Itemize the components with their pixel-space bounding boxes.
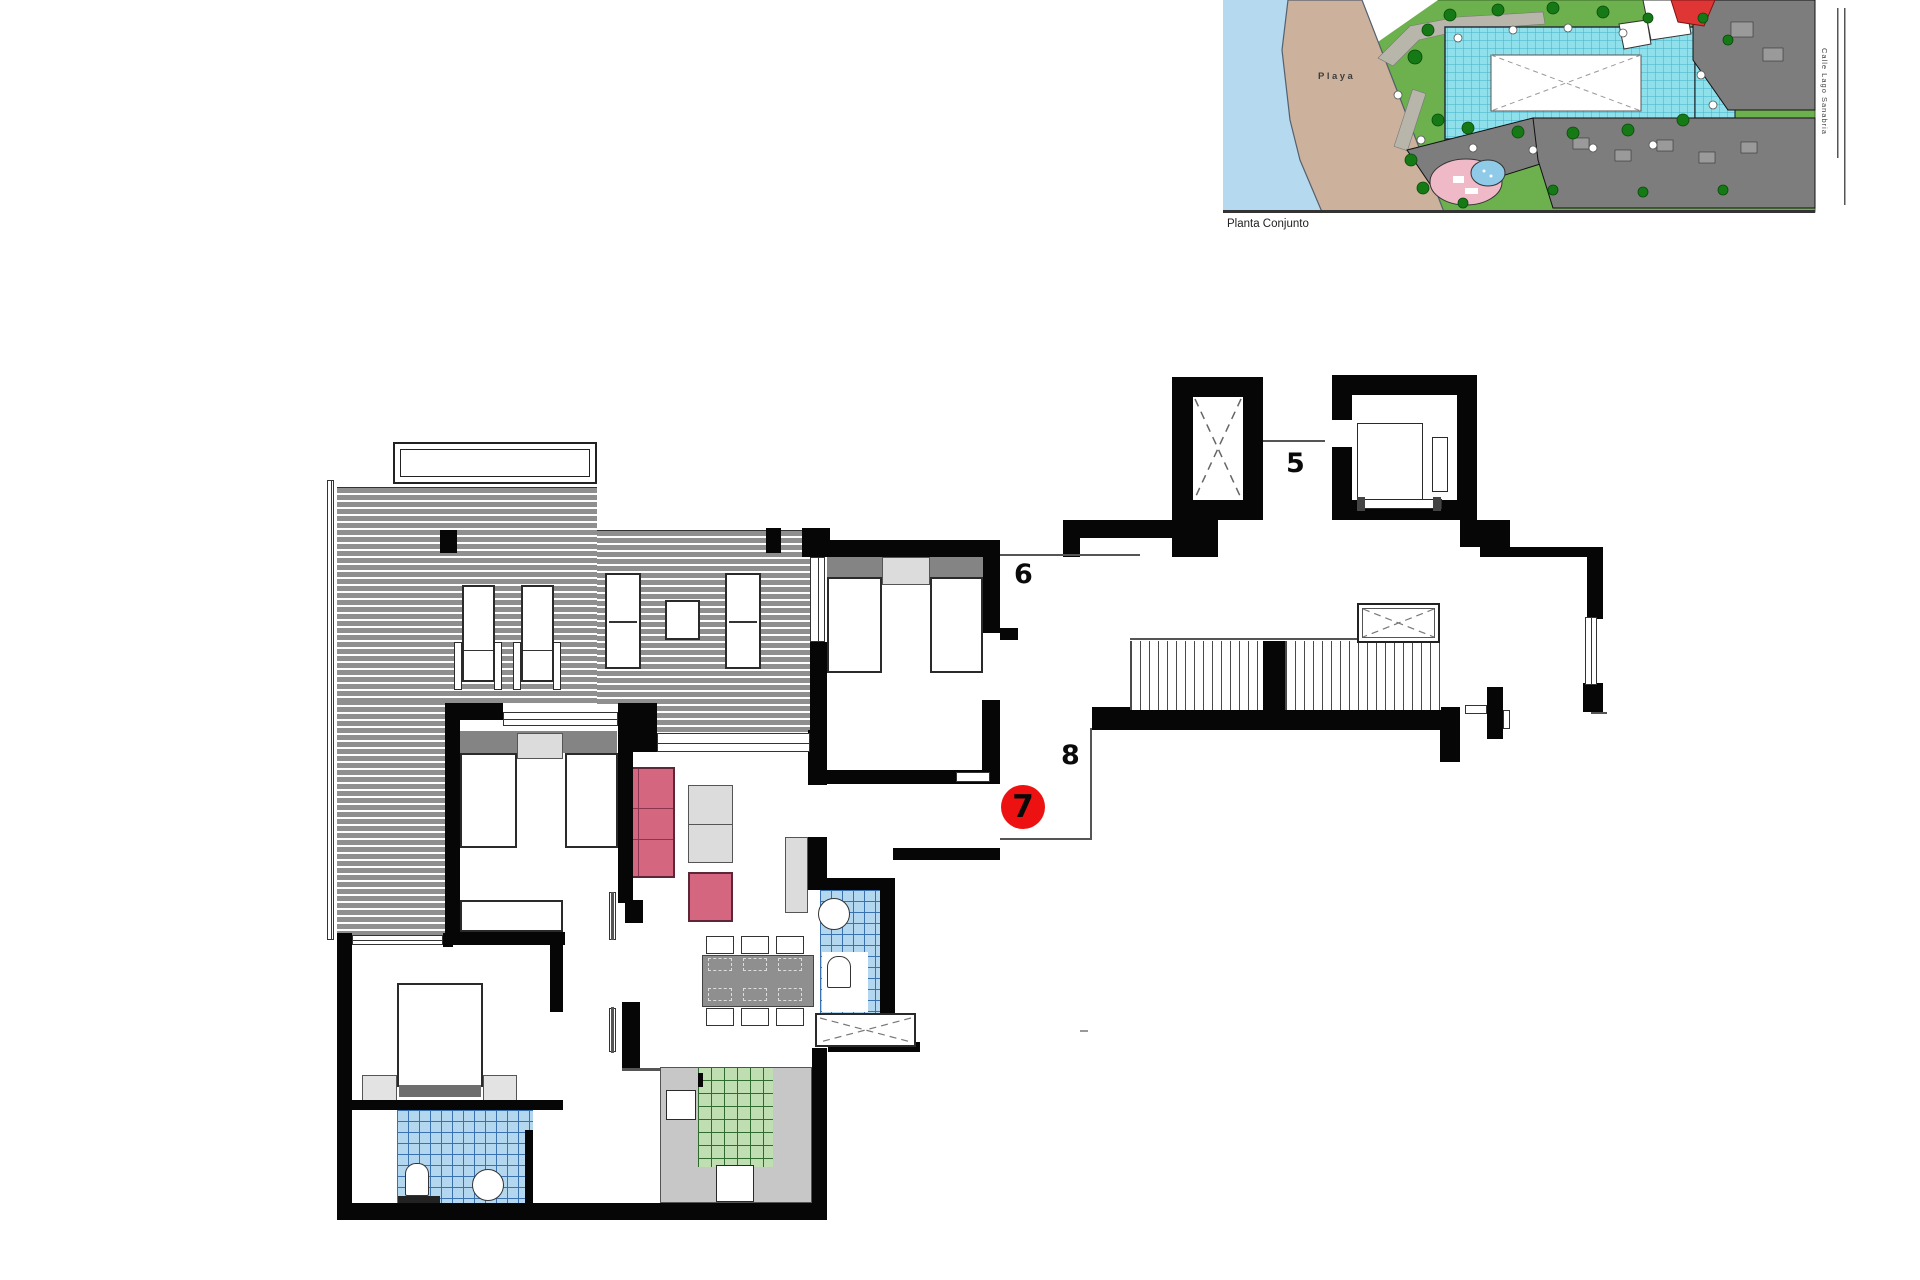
shower-x-mark bbox=[815, 1013, 916, 1047]
pond-detail bbox=[1465, 188, 1478, 194]
rail-cap bbox=[1433, 497, 1441, 511]
terrace-post bbox=[440, 530, 457, 553]
dining-chair bbox=[776, 1008, 804, 1026]
desk bbox=[460, 900, 563, 932]
wall bbox=[352, 1100, 563, 1110]
floor-edge-line bbox=[1591, 712, 1607, 714]
street-line bbox=[1844, 8, 1846, 205]
building-detail bbox=[1657, 140, 1673, 151]
vanity-counter bbox=[398, 1196, 440, 1203]
dining-chair bbox=[776, 936, 804, 954]
site-plan-bottom-border bbox=[1223, 210, 1815, 213]
rail-cap bbox=[1357, 497, 1365, 511]
lounger-armrest bbox=[553, 642, 561, 690]
outdoor-side-table bbox=[665, 600, 700, 640]
lounger-armrest bbox=[454, 642, 462, 690]
stair-divider-wall bbox=[1263, 641, 1285, 723]
wall bbox=[880, 878, 895, 1018]
wall bbox=[812, 1048, 827, 1220]
wall bbox=[622, 1002, 640, 1068]
floor-edge-line bbox=[1000, 554, 1140, 556]
wall bbox=[1440, 730, 1460, 762]
wall bbox=[982, 700, 1000, 777]
pond-blue bbox=[1471, 160, 1505, 186]
dimension-tick bbox=[1080, 1030, 1088, 1032]
wall bbox=[1487, 687, 1503, 739]
building-detail bbox=[1573, 138, 1589, 149]
wall bbox=[443, 933, 453, 947]
elevator-x-mark bbox=[1193, 397, 1243, 500]
wardrobe-box bbox=[882, 557, 930, 585]
site-plan-drawing bbox=[1223, 0, 1850, 214]
wall bbox=[1063, 520, 1080, 557]
kitchen-fixture bbox=[698, 1073, 703, 1087]
terrace-deck bbox=[337, 700, 445, 940]
wall bbox=[983, 540, 1000, 633]
wall bbox=[808, 730, 827, 785]
wall bbox=[810, 642, 827, 733]
street-label: Calle Lago Sanabria bbox=[1820, 48, 1829, 135]
wall bbox=[830, 540, 1000, 557]
street-line bbox=[1837, 8, 1839, 158]
chair-outline bbox=[743, 958, 767, 971]
building-detail bbox=[1731, 22, 1753, 37]
sun-lounger bbox=[521, 585, 554, 682]
armchair bbox=[688, 872, 733, 922]
chair-outline bbox=[778, 958, 802, 971]
dining-chair bbox=[706, 936, 734, 954]
storage-rail bbox=[1360, 499, 1442, 509]
twin-bed bbox=[565, 753, 618, 848]
chair-outline bbox=[743, 988, 767, 1001]
terrace-planter bbox=[393, 442, 597, 484]
pond-dot bbox=[1483, 170, 1486, 173]
unit-label-5: 5 bbox=[1286, 450, 1305, 477]
chair-outline bbox=[778, 988, 802, 1001]
window bbox=[503, 712, 618, 726]
wall bbox=[337, 933, 352, 1220]
building-detail bbox=[1699, 152, 1715, 163]
site-plan: Playa Calle Lago Sanabria bbox=[1223, 0, 1850, 214]
wall bbox=[1172, 520, 1218, 557]
floor-edge-line bbox=[1000, 838, 1092, 840]
bed-footer bbox=[399, 1085, 481, 1097]
wall bbox=[893, 848, 1000, 860]
wall bbox=[445, 703, 503, 720]
kitchen-appliance bbox=[666, 1090, 696, 1120]
coffee-table bbox=[688, 785, 733, 863]
wall bbox=[1480, 547, 1603, 557]
wall bbox=[802, 528, 830, 557]
dining-chair bbox=[741, 936, 769, 954]
wall bbox=[1000, 628, 1018, 640]
storage-shelf bbox=[1432, 437, 1448, 492]
outdoor-loveseat bbox=[725, 573, 761, 669]
nightstand bbox=[362, 1075, 397, 1101]
highlighted-unit-marker: 7 bbox=[1001, 785, 1045, 829]
lounger-armrest bbox=[494, 642, 502, 690]
door-leaf bbox=[611, 1007, 614, 1053]
wall bbox=[620, 737, 657, 752]
wall bbox=[337, 1203, 827, 1220]
nightstand bbox=[483, 1075, 517, 1101]
building-detail bbox=[1615, 150, 1631, 161]
sun-lounger bbox=[462, 585, 495, 682]
kitchen-floor bbox=[698, 1067, 773, 1167]
wall bbox=[1460, 520, 1510, 547]
wall bbox=[1080, 520, 1172, 538]
entry-threshold bbox=[956, 772, 990, 782]
toilet bbox=[405, 1163, 429, 1196]
highlighted-unit-number: 7 bbox=[1012, 789, 1034, 825]
round-sink bbox=[472, 1169, 504, 1201]
floor-edge-line bbox=[1263, 440, 1325, 442]
floor-plan-sheet: Playa Calle Lago Sanabria Planta Conjunt… bbox=[0, 0, 1920, 1280]
sideboard bbox=[785, 837, 808, 913]
stair-flight bbox=[1285, 641, 1441, 710]
twin-bed bbox=[930, 577, 983, 673]
floor-edge-line bbox=[1090, 728, 1092, 840]
bath-fixture-strip bbox=[525, 1130, 533, 1203]
twin-bed bbox=[460, 753, 517, 848]
unit-label-8: 8 bbox=[1061, 742, 1080, 769]
unit-label-6: 6 bbox=[1014, 561, 1033, 588]
wall bbox=[625, 902, 643, 923]
dining-chair bbox=[741, 1008, 769, 1026]
wall-thin bbox=[622, 1068, 660, 1071]
window bbox=[657, 733, 810, 752]
terrace-railing bbox=[327, 480, 334, 940]
storage-bed bbox=[1357, 423, 1423, 500]
toilet bbox=[827, 956, 851, 988]
terrace-door bbox=[352, 935, 443, 945]
wall bbox=[550, 940, 563, 1012]
outdoor-loveseat bbox=[605, 573, 641, 669]
window bbox=[810, 557, 825, 642]
round-sink bbox=[818, 898, 850, 930]
pond-detail bbox=[1453, 176, 1464, 183]
dining-chair bbox=[706, 1008, 734, 1026]
skylight-x-mark bbox=[1357, 603, 1440, 643]
wall bbox=[1587, 557, 1603, 619]
site-plan-caption: Planta Conjunto bbox=[1227, 218, 1309, 230]
pond-dot bbox=[1490, 175, 1493, 178]
kitchen-appliance bbox=[716, 1165, 754, 1202]
wall bbox=[1583, 683, 1603, 712]
wardrobe-box bbox=[517, 733, 563, 759]
terrace-post bbox=[766, 528, 781, 553]
storage-door-gap bbox=[1332, 420, 1352, 447]
double-bed bbox=[397, 983, 483, 1087]
chair-outline bbox=[708, 958, 732, 971]
wall bbox=[445, 703, 460, 940]
building-detail bbox=[1763, 48, 1783, 61]
door-leaf bbox=[611, 892, 614, 940]
niche bbox=[1503, 710, 1510, 729]
stair-flight bbox=[1130, 641, 1264, 710]
chair-outline bbox=[708, 988, 732, 1001]
building-detail bbox=[1741, 142, 1757, 153]
beach-label: Playa bbox=[1318, 71, 1355, 82]
niche bbox=[1465, 705, 1487, 714]
twin-bed bbox=[827, 577, 882, 673]
wall bbox=[618, 750, 633, 903]
window bbox=[1585, 617, 1597, 685]
lounger-armrest bbox=[513, 642, 521, 690]
